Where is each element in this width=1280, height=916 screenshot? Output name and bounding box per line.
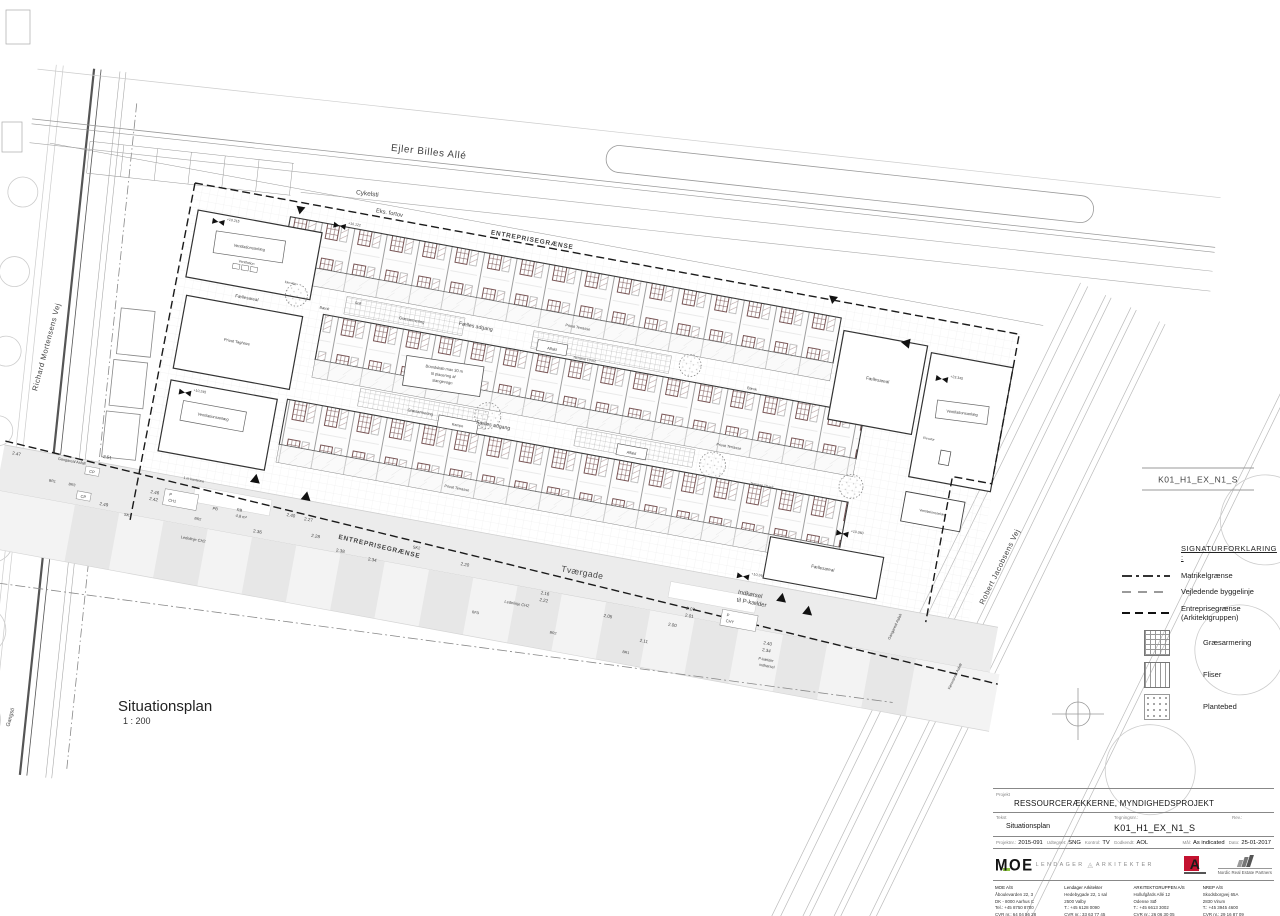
- title-block-logos-row: MOE LENDAGER ◬ ARKITEKTER A Nordic Real …: [993, 849, 1274, 880]
- company-arkitektgruppen: ARKITEKTGRUPPEN A/S Hollufgårds Allé 12 …: [1134, 885, 1203, 916]
- legend-item-byggelinje: Vejledende byggelinje: [1122, 587, 1274, 596]
- nrep-logo: Nordic Real Estate Partners: [1218, 855, 1272, 875]
- lendager-logo: LENDAGER ◬ ARKITEKTER: [1036, 861, 1154, 869]
- title-block-fields-row: Projektnr.:2015-091 Udtegnet:SNG Kontrol…: [993, 837, 1274, 848]
- field-label: Projektnr.:: [996, 840, 1016, 845]
- street-right-label: Robert Jacobsens Vej: [977, 527, 1021, 606]
- field-value: AOL: [1137, 840, 1149, 846]
- legend-item-fliser: Fliser: [1122, 662, 1274, 688]
- arkitektgruppen-bar: [1184, 872, 1206, 874]
- field-value: SNG: [1068, 840, 1081, 846]
- legend-label: Græsarmering: [1203, 638, 1251, 647]
- field-value: TV: [1102, 840, 1109, 846]
- field-value: As indicated: [1193, 840, 1225, 846]
- company-lendager: Lendager Arkitekter Hedebygade 22, 1 sal…: [1064, 885, 1133, 916]
- company-line: 2830 Virum: [1203, 899, 1272, 906]
- legend-item-plantebed: Plantebed: [1122, 694, 1274, 720]
- legend-label: Vejledende byggelinje: [1181, 587, 1254, 596]
- lendager-icon: ◬: [1088, 861, 1093, 869]
- plan-caption: Situationsplan 1 : 200: [118, 698, 212, 726]
- moe-logo: MOE: [995, 856, 1034, 874]
- dashed-light-line-sample: [1122, 591, 1170, 592]
- field-label: Kontrol:: [1085, 840, 1101, 845]
- plan-scale: 1 : 200: [123, 716, 212, 726]
- legend-item-graesarmering: Græsarmering: [1122, 630, 1274, 656]
- legend: SIGNATURFORKLARING : Matrikelgrænse Vejl…: [1122, 544, 1274, 726]
- company-name: Lendager Arkitekter: [1064, 885, 1133, 892]
- survey-crosshair: [1052, 688, 1104, 740]
- lendager-wordmark-1: LENDAGER: [1036, 862, 1085, 868]
- legend-label: Matrikelgrænse: [1181, 571, 1233, 580]
- company-line: DK - 8000 Aarhus C: [995, 899, 1064, 906]
- company-line: CVR nr.: 29 16 87 09: [1203, 912, 1272, 916]
- legend-label-2: (Arkitektgruppen): [1181, 613, 1241, 622]
- site-group: Eks. fortov: [0, 143, 1063, 765]
- dashed-bold-line-sample: [1122, 612, 1170, 615]
- legend-label: Fliser: [1203, 670, 1221, 679]
- company-line: Skodsborgvej 65A: [1203, 892, 1272, 899]
- sheet: Richard Mortensens Vej Gangsti Robert Ja…: [0, 0, 1280, 916]
- drawing-number-box: K01_H1_EX_N1_S: [1142, 468, 1254, 490]
- project-label: Projekt: [996, 792, 1010, 797]
- company-line: Åboulevarden 22, 3: [995, 892, 1064, 899]
- legend-title: SIGNATURFORKLARING :: [1181, 544, 1274, 562]
- field-value: 2015-091: [1018, 840, 1043, 846]
- lendager-wordmark-2: ARKITEKTER: [1096, 862, 1154, 868]
- arkitektgruppen-a-glyph: A: [1190, 856, 1200, 872]
- title-block-project-row: Projekt RESSOURCERÆKKERNE, MYNDIGHEDSPRO…: [993, 789, 1274, 812]
- legend-item-entreprisegraense: Entreprisegrænse (Arkitektgruppen): [1122, 604, 1274, 623]
- neighbor-buildings: [102, 308, 155, 461]
- drawingno-label: Tegningsnr.:: [1114, 815, 1232, 820]
- company-line: CVR nr.: 64 04 56 28: [995, 912, 1064, 916]
- company-nrep: NREP A/S Skodsborgvej 65A 2830 Virum T.:…: [1203, 885, 1272, 916]
- company-line: Odense SØ: [1134, 899, 1203, 906]
- company-line: Tel.: +45 8750 8700: [995, 905, 1064, 912]
- company-line: T.: +45 3945 4600: [1203, 905, 1272, 912]
- plan-title: Situationsplan: [118, 698, 212, 715]
- legend-item-matrikelgraense: Matrikelgrænse: [1122, 571, 1274, 580]
- drawingno-value: K01_H1_EX_N1_S: [1114, 823, 1232, 833]
- title-block: Projekt RESSOURCERÆKKERNE, MYNDIGHEDSPRO…: [993, 788, 1274, 916]
- legend-label: Plantebed: [1203, 702, 1237, 711]
- company-line: Hollufgårds Allé 12: [1134, 892, 1203, 899]
- legend-label: Entreprisegrænse: [1181, 604, 1241, 613]
- field-label: Udtegnet:: [1047, 840, 1067, 845]
- road-elev: 2.51: [103, 454, 113, 461]
- title-block-companies-row: MOE A/S Åboulevarden 22, 3 DK - 8000 Aar…: [993, 881, 1274, 916]
- field-value: 25-01-2017: [1241, 840, 1271, 846]
- field-label: Godkendt:: [1114, 840, 1135, 845]
- title-block-text-row: Tekst Situationsplan Tegningsnr.: K01_H1…: [993, 813, 1274, 836]
- field-label: Dato:: [1229, 840, 1240, 845]
- company-line: CVR nr.: 26 06 30 05: [1134, 912, 1203, 916]
- rev-label: Rev.:: [1232, 815, 1271, 820]
- company-line: T.: +45 6128 0090: [1064, 905, 1133, 912]
- company-line: CVR nr.: 33 63 77 45: [1064, 912, 1133, 916]
- company-line: T.: +45 6613 3002: [1134, 905, 1203, 912]
- dashdot-line-sample: [1122, 575, 1170, 577]
- drawing-number-label: K01_H1_EX_N1_S: [1158, 475, 1238, 485]
- vertical-lines-swatch: [1144, 662, 1170, 688]
- company-line: 2500 Valby: [1064, 899, 1133, 906]
- field-label: Mål:: [1182, 840, 1191, 845]
- edge-fragments: [2, 10, 30, 152]
- nrep-caption: Nordic Real Estate Partners: [1218, 868, 1272, 875]
- text-label: Tekst: [996, 815, 1114, 820]
- median-island: [605, 144, 1095, 224]
- grid-hatch-swatch: [1144, 630, 1170, 656]
- project-name: RESSOURCERÆKKERNE, MYNDIGHEDSPROJEKT: [1014, 799, 1271, 808]
- site-plan-svg: Richard Mortensens Vej Gangsti Robert Ja…: [0, 0, 1280, 916]
- company-name: MOE A/S: [995, 885, 1064, 892]
- street-left-label: Richard Mortensens Vej: [30, 302, 62, 392]
- company-moe: MOE A/S Åboulevarden 22, 3 DK - 8000 Aar…: [995, 885, 1064, 916]
- company-name: ARKITEKTGRUPPEN A/S: [1134, 885, 1203, 892]
- dots-swatch: [1144, 694, 1170, 720]
- sheet-text: Situationsplan: [1006, 823, 1114, 830]
- arkitektgruppen-logo: A: [1184, 856, 1196, 874]
- company-line: Hedebygade 22, 1 sal: [1064, 892, 1133, 899]
- bike-path-label: Cykelsti: [356, 189, 379, 198]
- path-label: Gangsti: [6, 708, 17, 728]
- company-name: NREP A/S: [1203, 885, 1272, 892]
- nrep-building-icon: [1238, 855, 1252, 867]
